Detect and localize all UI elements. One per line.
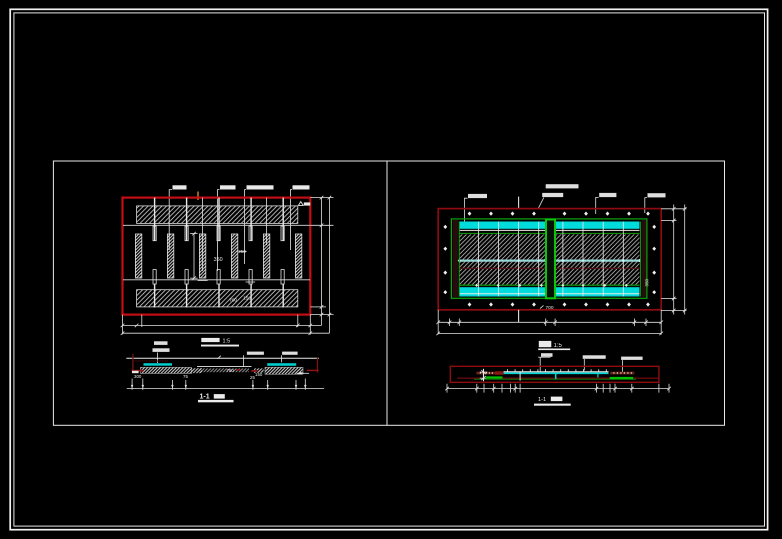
svg-text:1-1: 1-1 bbox=[200, 394, 210, 401]
svg-text:150: 150 bbox=[243, 296, 251, 302]
svg-text:700: 700 bbox=[229, 298, 237, 304]
svg-text:750: 750 bbox=[227, 368, 235, 373]
svg-text:300: 300 bbox=[134, 374, 142, 379]
svg-text:1:5: 1:5 bbox=[554, 343, 563, 349]
svg-text:1:5: 1:5 bbox=[223, 339, 231, 345]
svg-text:150: 150 bbox=[255, 372, 263, 377]
svg-text:75: 75 bbox=[183, 374, 188, 379]
svg-text:25: 25 bbox=[250, 375, 255, 380]
svg-text:1-1: 1-1 bbox=[538, 397, 546, 403]
svg-text:350: 350 bbox=[214, 257, 223, 263]
svg-text:700: 700 bbox=[546, 305, 554, 311]
svg-text:350: 350 bbox=[644, 278, 649, 286]
